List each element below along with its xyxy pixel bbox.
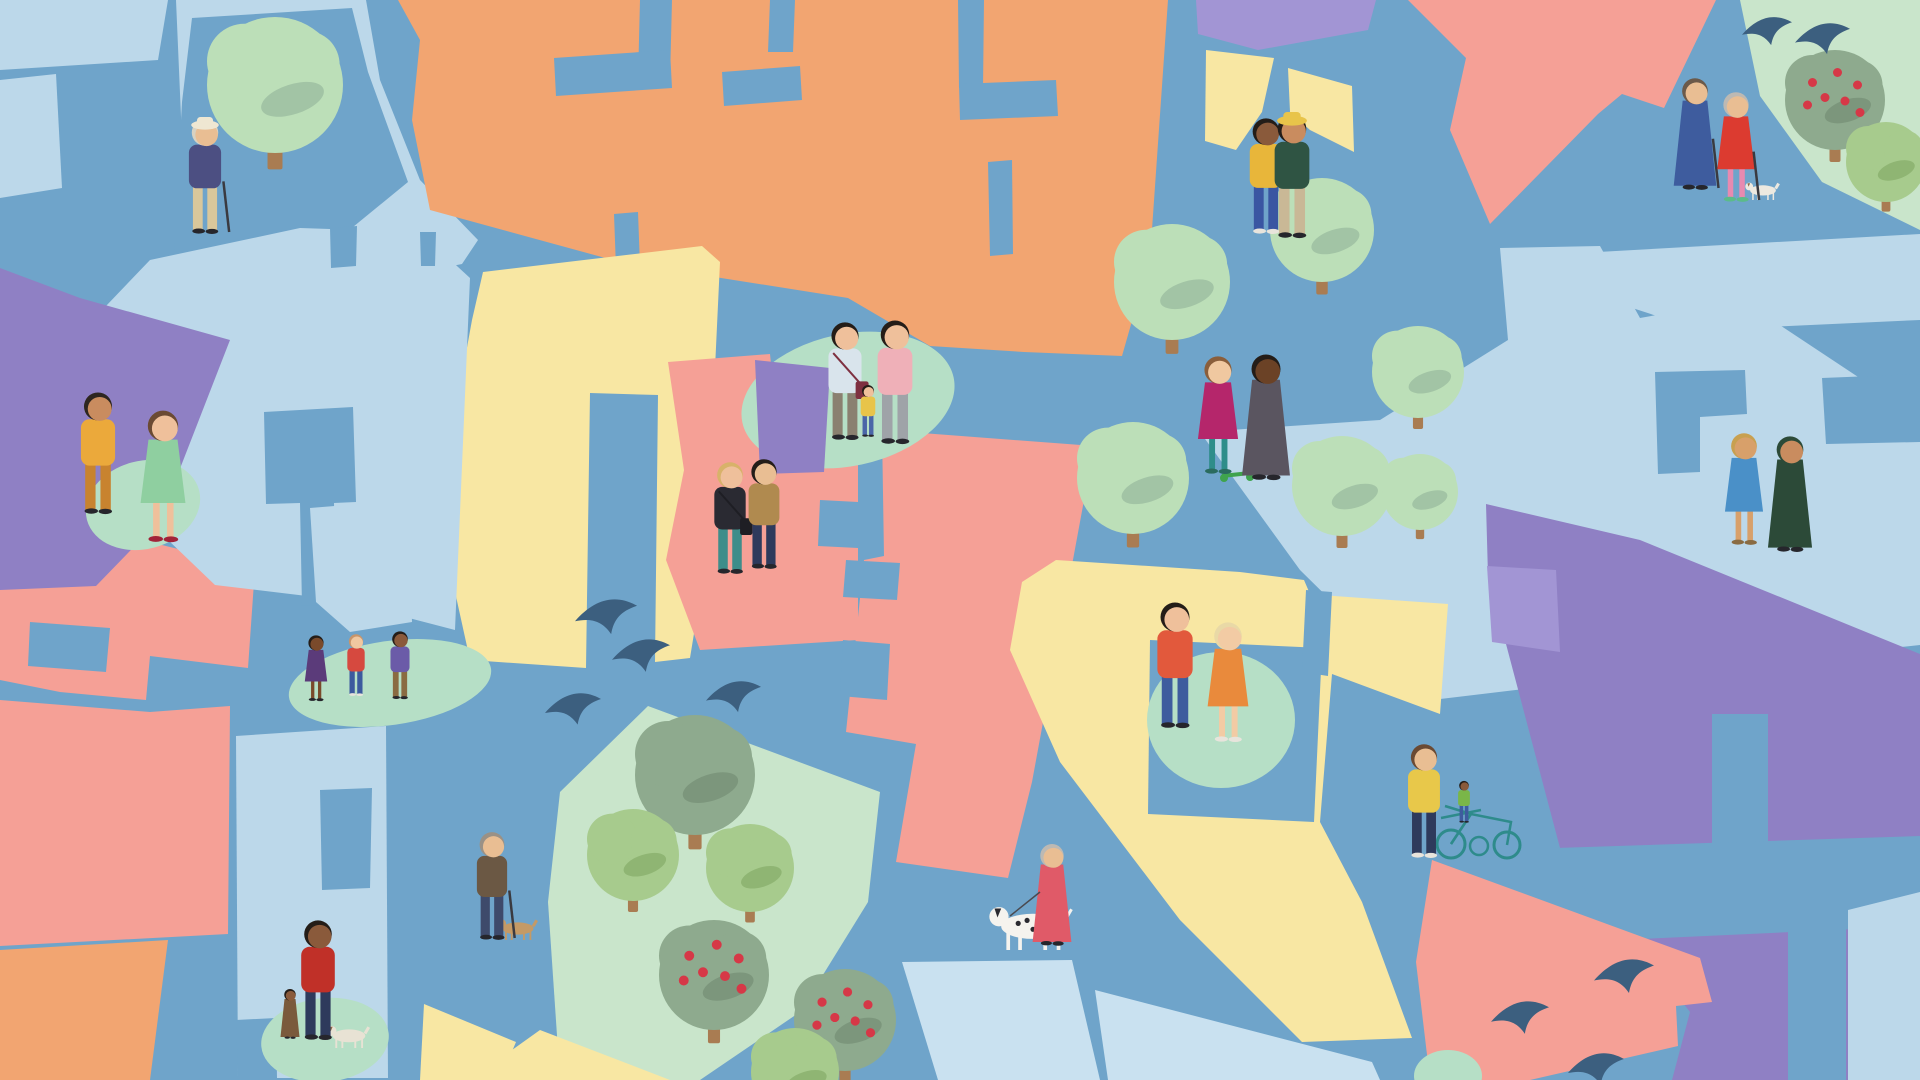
block-coral-center-street-cut-0 — [818, 500, 858, 548]
block-lightblue-right-big-street-cut-1 — [1822, 374, 1920, 444]
block-yellow-plaza-street-cut-1 — [1302, 590, 1332, 676]
block-orange-top-street-cut-3 — [722, 66, 802, 106]
block-orange-top-street-cut-7 — [988, 160, 1013, 256]
block-purple-right-big-street-cut-0 — [1712, 714, 1768, 856]
block-lightblue-bottomright-corner — [1848, 892, 1920, 1080]
block-yellow-big-center — [448, 246, 720, 668]
patch-purple-family-path — [755, 360, 830, 474]
block-salmon-left-street-cut-0 — [28, 622, 110, 672]
city-map-illustration — [0, 0, 1920, 1080]
block-purple-right-big-street-cut-2 — [1788, 906, 1846, 1080]
block-lightblue-bottom-column-street-cut-0 — [320, 788, 372, 890]
block-lightblue-sweep-street-cut-1 — [330, 226, 357, 268]
block-lightblue-kids-2 — [414, 494, 452, 596]
block-orange-bottomleft — [0, 940, 168, 1080]
block-purple-light-slice — [1487, 566, 1560, 652]
block-lightblue-sweep-street-cut-2 — [420, 232, 436, 266]
block-salmon-mid-street-cut-0 — [843, 560, 900, 600]
block-orange-top-street-cut-1 — [554, 50, 672, 96]
block-lightblue-left-sliver — [0, 74, 62, 198]
block-orange-top-street-cut-5 — [958, 0, 984, 88]
block-salmon-bottomleft — [0, 700, 230, 946]
block-orange-top-street-cut-6 — [959, 80, 1058, 120]
block-salmon-mid-street-cut-1 — [840, 640, 890, 700]
city-map-svg — [0, 0, 1920, 1080]
block-orange-top-street-cut-2 — [768, 0, 795, 52]
block-lightblue-topleft-corner — [0, 0, 168, 70]
